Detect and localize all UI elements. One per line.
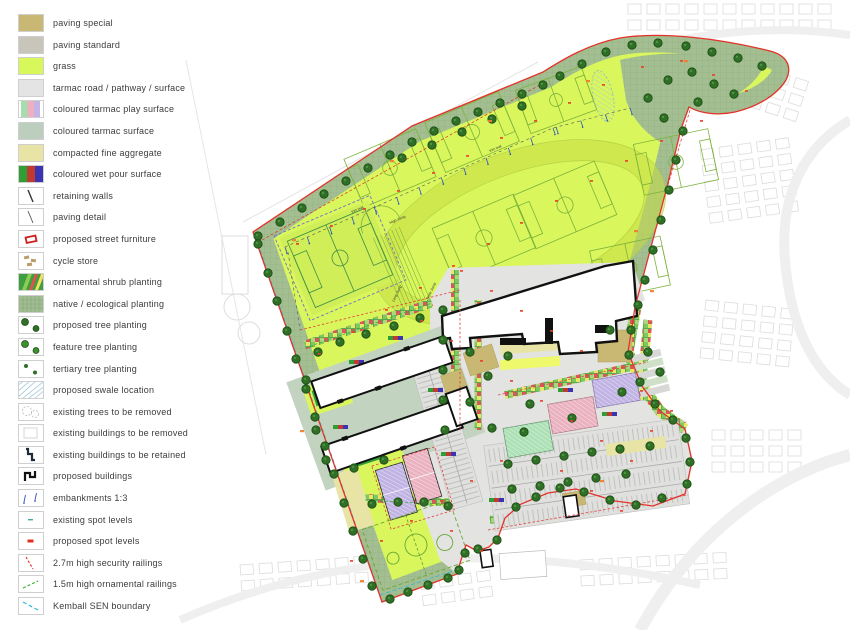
railing-ornamental-swatch-icon <box>18 575 44 593</box>
legend-item-label: existing buildings to be removed <box>53 428 188 438</box>
legend-item-cycle_store: cycle store <box>18 252 248 270</box>
legend-item-label: proposed street furniture <box>53 234 156 244</box>
legend-item-retaining: retaining walls <box>18 187 248 205</box>
legend-item-label: 1.5m high ornamental railings <box>53 579 177 589</box>
legend-item-play_surface: coloured tarmac play surface <box>18 100 248 118</box>
landscape-masterplan-page: High Jump Long Jump Triple Jump trim tra… <box>0 0 850 630</box>
legend-item-paving_special: paving special <box>18 14 248 32</box>
legend-item-tree_feature: feature tree planting <box>18 338 248 356</box>
aggregate-swatch-icon <box>18 144 44 162</box>
compound-outline <box>499 550 547 579</box>
legend-item-bldg_retained: existing buildings to be retained <box>18 446 248 464</box>
legend-item-label: cycle store <box>53 256 98 266</box>
legend-item-native_planting: native / ecological planting <box>18 295 248 313</box>
swale-swatch-icon <box>18 381 44 399</box>
legend-item-label: paving detail <box>53 212 106 222</box>
legend-item-wet_pour: coloured wet pour surface <box>18 165 248 183</box>
coloured-tarmac-swatch-icon <box>18 122 44 140</box>
legend-item-ornamental_shrub: ornamental shrub planting <box>18 273 248 291</box>
bldg-retained-swatch-icon <box>18 446 44 464</box>
bldg-proposed-swatch-icon <box>18 467 44 485</box>
legend-item-coloured_tarmac: coloured tarmac surface <box>18 122 248 140</box>
legend-item-railing_security: 2.7m high security railings <box>18 554 248 572</box>
legend-item-label: Kemball SEN boundary <box>53 601 151 611</box>
legend-item-trees_removed: existing trees to be removed <box>18 403 248 421</box>
paving-special-swatch-icon <box>18 14 44 32</box>
legend-item-spot_existing: existing spot levels <box>18 511 248 529</box>
legend-item-tree_proposed: proposed tree planting <box>18 316 248 334</box>
legend-panel: paving specialpaving standardgrasstarmac… <box>18 14 248 619</box>
tree-proposed-swatch-icon <box>18 316 44 334</box>
legend-item-tarmac: tarmac road / pathway / surface <box>18 79 248 97</box>
legend-item-label: retaining walls <box>53 191 113 201</box>
play-surface-swatch-icon <box>18 100 44 118</box>
wet-pour-swatch-icon <box>18 165 44 183</box>
legend-item-label: tertiary tree planting <box>53 364 137 374</box>
legend-item-label: embankments 1:3 <box>53 493 128 503</box>
legend-item-label: 2.7m high security railings <box>53 558 162 568</box>
legend-item-spot_proposed: proposed spot levels <box>18 532 248 550</box>
paving-standard-swatch-icon <box>18 36 44 54</box>
legend-item-bldg_proposed: proposed buildings <box>18 467 248 485</box>
legend-item-label: grass <box>53 61 76 71</box>
grass-swatch-icon <box>18 57 44 75</box>
retaining-swatch-icon <box>18 187 44 205</box>
tree-feature-swatch-icon <box>18 338 44 356</box>
tarmac-swatch-icon <box>18 79 44 97</box>
trees-removed-swatch-icon <box>18 403 44 421</box>
legend-item-bldg_removed: existing buildings to be removed <box>18 424 248 442</box>
legend-item-label: coloured tarmac surface <box>53 126 154 136</box>
legend-item-label: existing trees to be removed <box>53 407 172 417</box>
legend-item-label: native / ecological planting <box>53 299 164 309</box>
legend-item-label: coloured tarmac play surface <box>53 104 174 114</box>
sen-boundary-swatch-icon <box>18 597 44 615</box>
legend-item-label: proposed tree planting <box>53 320 147 330</box>
embankments-swatch-icon <box>18 489 44 507</box>
legend-item-label: ornamental shrub planting <box>53 277 162 287</box>
legend-item-grass: grass <box>18 57 248 75</box>
legend-item-label: feature tree planting <box>53 342 137 352</box>
bldg-removed-swatch-icon <box>18 424 44 442</box>
spot-proposed-swatch-icon <box>18 532 44 550</box>
legend-item-label: proposed buildings <box>53 471 132 481</box>
legend-item-label: existing spot levels <box>53 515 133 525</box>
spot-existing-swatch-icon <box>18 511 44 529</box>
legend-item-street_furniture: proposed street furniture <box>18 230 248 248</box>
cycle-store-swatch-icon <box>18 252 44 270</box>
legend-item-railing_ornamental: 1.5m high ornamental railings <box>18 575 248 593</box>
legend-item-paving_detail: paving detail <box>18 208 248 226</box>
legend-item-aggregate: compacted fine aggregate <box>18 144 248 162</box>
tree-tertiary-swatch-icon <box>18 360 44 378</box>
legend-item-label: compacted fine aggregate <box>53 148 162 158</box>
legend-item-label: tarmac road / pathway / surface <box>53 83 185 93</box>
legend-item-tree_tertiary: tertiary tree planting <box>18 360 248 378</box>
legend-item-paving_standard: paving standard <box>18 36 248 54</box>
legend-item-label: paving standard <box>53 40 120 50</box>
legend-item-embankments: embankments 1:3 <box>18 489 248 507</box>
paving-detail-swatch-icon <box>18 208 44 226</box>
legend-item-label: proposed swale location <box>53 385 154 395</box>
legend-item-label: proposed spot levels <box>53 536 140 546</box>
legend-item-sen_boundary: Kemball SEN boundary <box>18 597 248 615</box>
railing-security-swatch-icon <box>18 554 44 572</box>
ornamental-shrub-swatch-icon <box>18 273 44 291</box>
legend-item-label: paving special <box>53 18 113 28</box>
legend-item-swale: proposed swale location <box>18 381 248 399</box>
native-planting-swatch-icon <box>18 295 44 313</box>
legend-item-label: coloured wet pour surface <box>53 169 162 179</box>
street-furniture-swatch-icon <box>18 230 44 248</box>
legend-item-label: existing buildings to be retained <box>53 450 186 460</box>
